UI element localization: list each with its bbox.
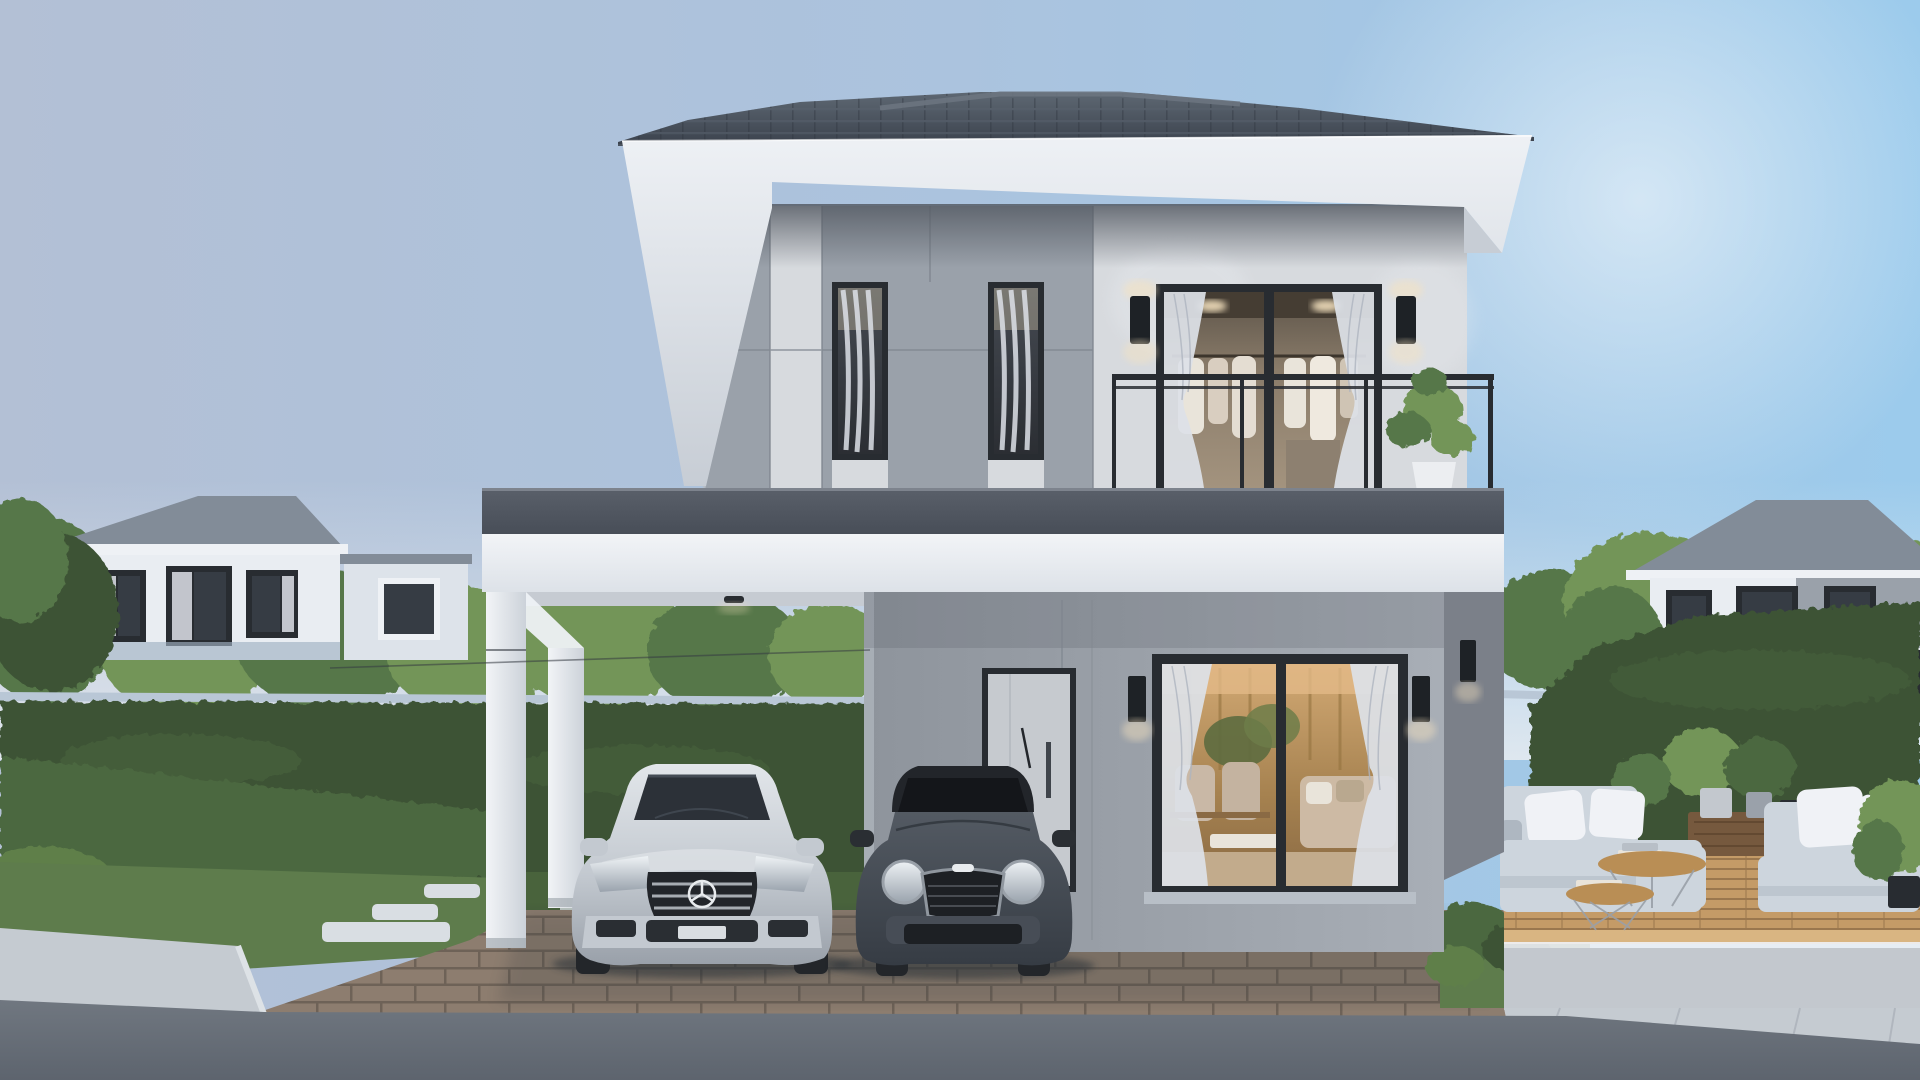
- carport-column-back: [548, 648, 584, 908]
- house-side-wall-right: [1444, 592, 1504, 880]
- mini-grille: [922, 869, 1004, 920]
- hedge-right-highlight: [1610, 650, 1910, 710]
- mini-mirror-left: [850, 830, 874, 847]
- neighbor-left-windows: [92, 566, 298, 646]
- mini-windshield: [898, 778, 1028, 812]
- mercedes-mirror-left: [580, 838, 608, 856]
- mercedes-mirror-right: [796, 838, 824, 856]
- under-eave-shadow: [704, 204, 1467, 268]
- mini-mirror-right: [1052, 830, 1076, 847]
- balcony-slab-band: [482, 488, 1504, 536]
- mercedes-windshield: [634, 776, 770, 820]
- mini-emblem: [952, 864, 974, 872]
- mercedes-plate: [678, 926, 726, 939]
- house-rendering: Photorealistic exterior rendering of a m…: [0, 0, 1920, 1080]
- closet-window: [1156, 284, 1382, 496]
- narrow-window-2: [988, 282, 1044, 490]
- living-room-window: [1144, 654, 1416, 904]
- plant-pot-white: [1700, 788, 1732, 818]
- narrow-window-1: [832, 282, 888, 490]
- mini-headlight-right: [1001, 861, 1043, 903]
- carport-slab: [482, 534, 1504, 592]
- rendering-canvas: Photorealistic exterior rendering of a m…: [0, 0, 1920, 1080]
- mini-headlight-left: [883, 861, 925, 903]
